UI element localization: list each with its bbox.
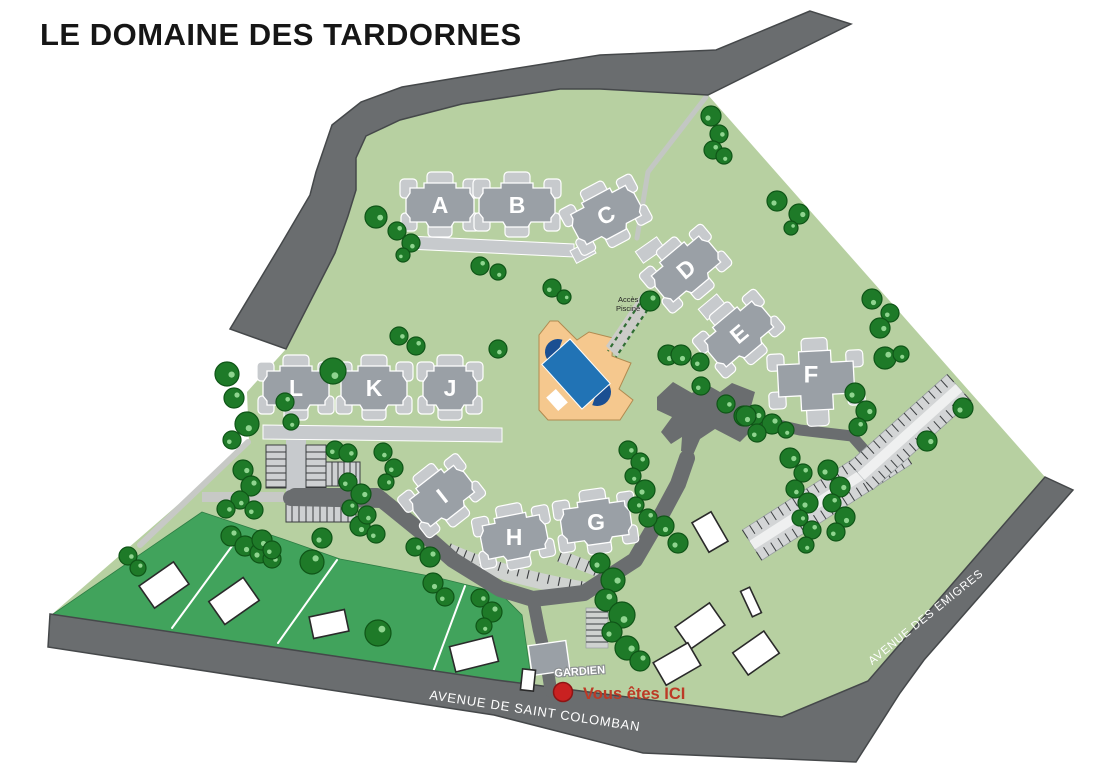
svg-text:G: G — [587, 509, 605, 535]
svg-text:F: F — [804, 362, 819, 389]
svg-text:J: J — [444, 375, 457, 401]
svg-text:Accès: Accès — [618, 295, 639, 304]
svg-text:Piscine: Piscine — [616, 304, 640, 313]
svg-text:Vous êtes ICI: Vous êtes ICI — [583, 685, 685, 703]
svg-text:H: H — [506, 524, 523, 550]
svg-text:B: B — [509, 192, 526, 218]
svg-text:LE DOMAINE DES TARDORNES: LE DOMAINE DES TARDORNES — [40, 17, 522, 52]
svg-text:A: A — [432, 192, 449, 218]
svg-text:K: K — [366, 375, 383, 401]
